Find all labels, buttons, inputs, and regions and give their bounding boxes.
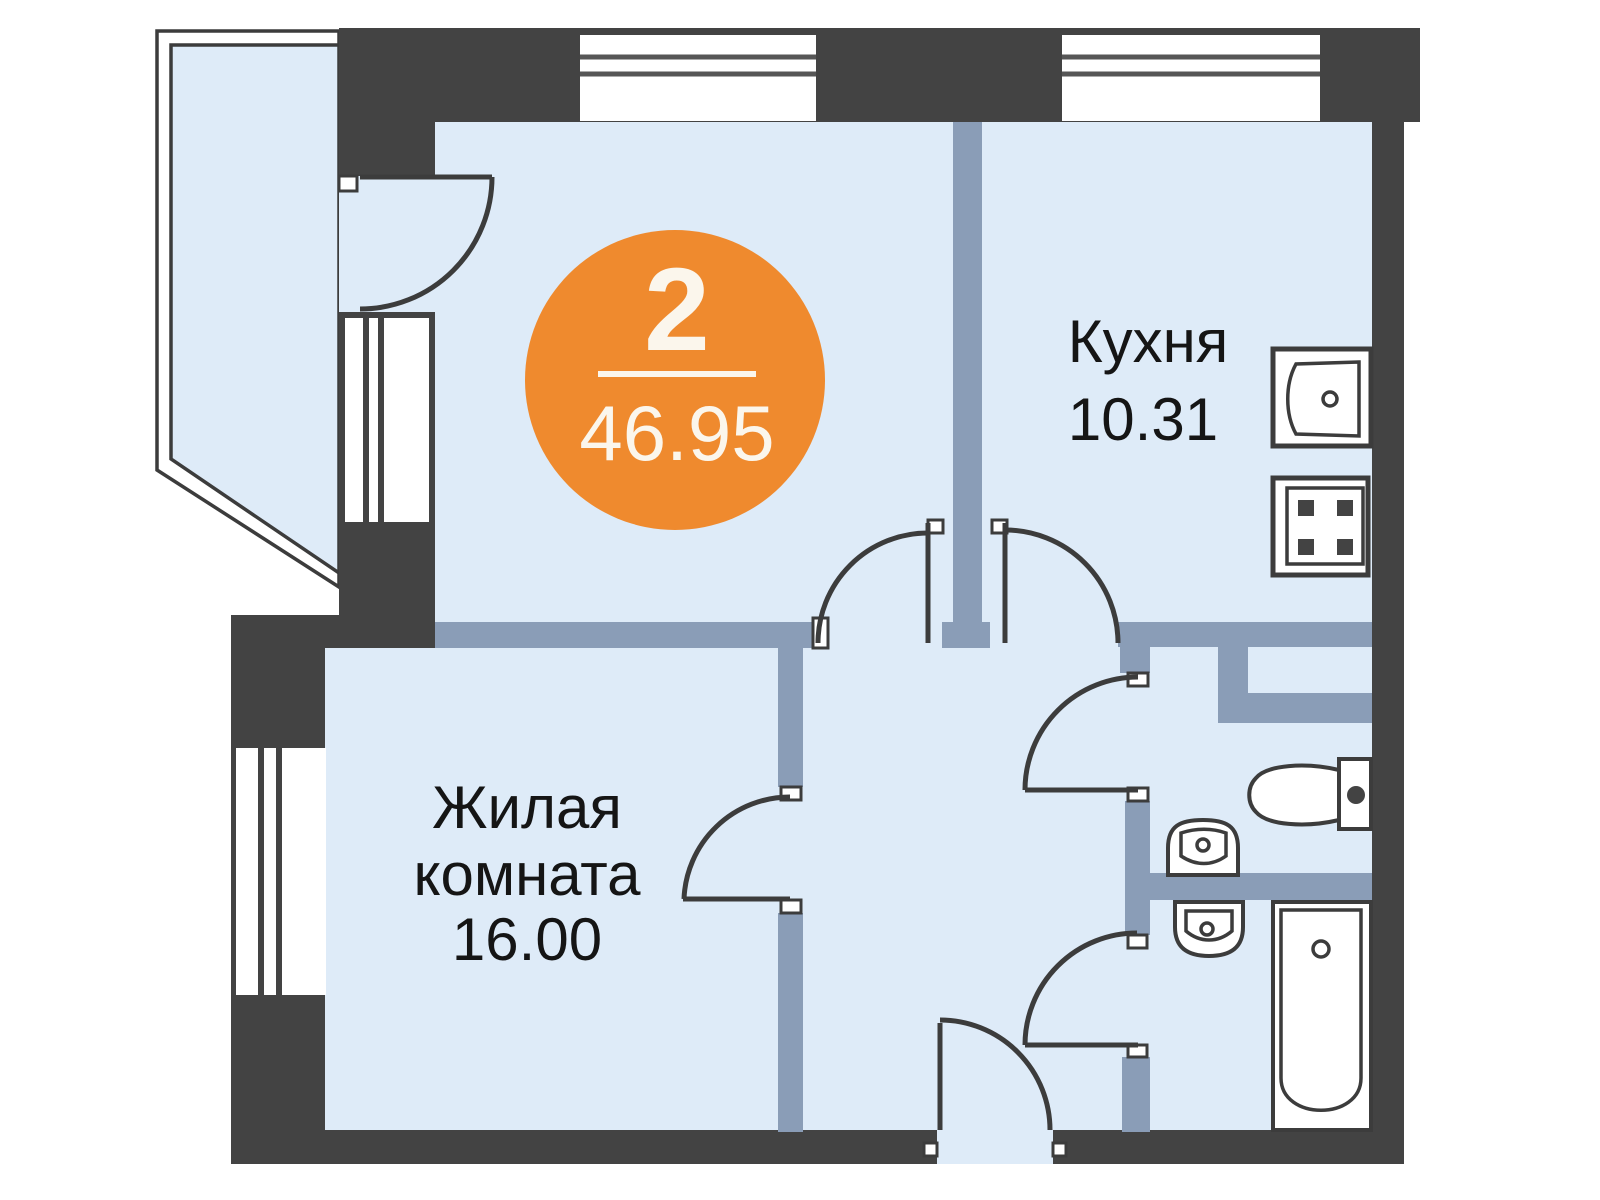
partition-shaft-bottom	[1248, 693, 1372, 723]
jamb-balcony-door	[339, 176, 357, 191]
jamb-living-bottom	[781, 900, 801, 913]
wall-bottom-right	[1053, 1130, 1404, 1164]
partition-bath-wall-mid	[1125, 900, 1150, 935]
wall-balcony-pier-bottom	[339, 522, 435, 648]
partition-kitchen-divider	[953, 122, 982, 622]
living-name-line2: комната	[414, 841, 642, 908]
bathtub-icon	[1273, 902, 1371, 1130]
toilet-icon	[1249, 759, 1371, 829]
partition-living-top	[778, 647, 803, 787]
partition-kitchen-divider-base	[942, 622, 990, 648]
window-left-living	[236, 748, 326, 995]
partition-right-band	[1118, 622, 1372, 647]
wall-balcony-pier-top	[339, 28, 435, 176]
jamb-entrance-left	[924, 1143, 937, 1156]
partition-wc-pier	[1120, 622, 1150, 673]
partition-hall-top	[435, 622, 813, 648]
floor-plan: 2 46.95 Кухня 10.31 Жилая комната 16.00	[0, 0, 1600, 1200]
partition-shaft-stub	[1218, 647, 1248, 723]
wash-basin-bath-icon	[1175, 902, 1243, 956]
window-top-living	[580, 35, 816, 121]
jamb-entrance-right	[1053, 1143, 1066, 1156]
partition-bath-wall-upper	[1125, 801, 1150, 873]
living-area-label: 16.00	[452, 906, 602, 973]
wall-bottom-left	[231, 1130, 937, 1164]
partition-bath-wall-lower	[1122, 1057, 1150, 1132]
window-top-kitchen	[1062, 35, 1320, 121]
badge-total-area: 46.95	[579, 389, 774, 477]
balcony	[157, 31, 339, 587]
area-badge: 2 46.95	[525, 230, 825, 530]
floor-plan-canvas: 2 46.95 Кухня 10.31 Жилая комната 16.00	[0, 0, 1600, 1200]
window-balcony	[339, 312, 435, 522]
kitchen-sink-icon	[1273, 349, 1371, 446]
living-name-line1: Жилая	[432, 774, 622, 841]
kitchen-area-label: 10.31	[1068, 386, 1218, 453]
wall-right	[1372, 28, 1404, 1164]
partition-bath-band	[1125, 873, 1372, 900]
kitchen-name-label: Кухня	[1068, 308, 1229, 375]
stove-icon	[1273, 478, 1368, 575]
jamb-bath-top	[1128, 935, 1147, 948]
wash-basin-wc-icon	[1168, 820, 1238, 875]
partition-living-bottom	[778, 913, 803, 1132]
entrance-opening	[937, 1130, 1053, 1164]
badge-rooms-count: 2	[644, 244, 710, 376]
